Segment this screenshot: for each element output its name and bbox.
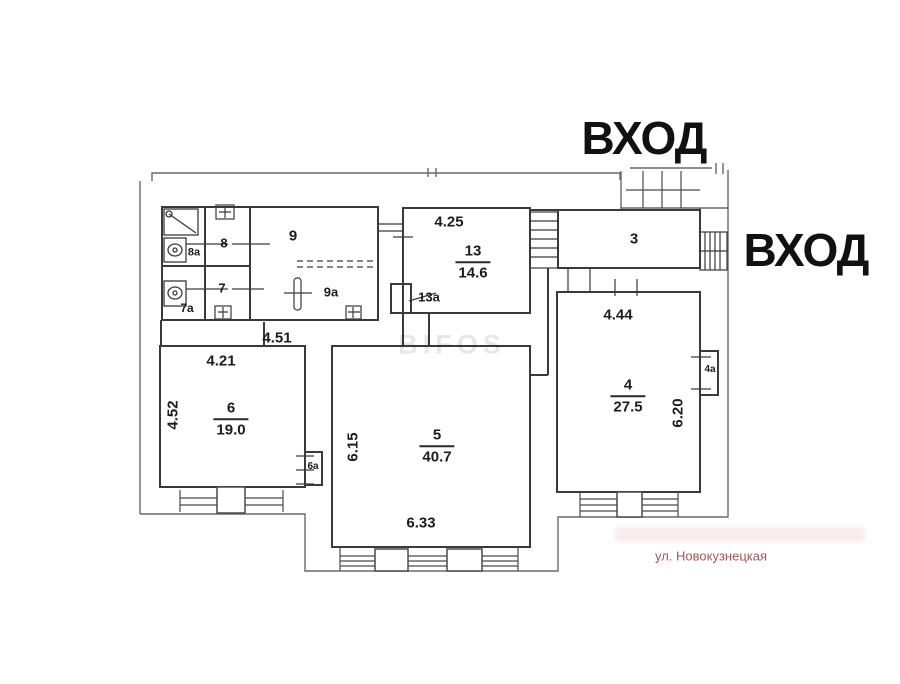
room-5-number: 5 (431, 427, 443, 445)
shower-icon (164, 209, 198, 235)
dim-top-room6: 4.21 (206, 354, 235, 369)
dim-top-room4: 4.44 (603, 308, 632, 323)
room-4-area-label: 4 27.5 (610, 377, 645, 415)
room-13a-label: 13a (418, 291, 440, 304)
room-13-area-label: 13 14.6 (455, 243, 490, 281)
room-4-area: 27.5 (610, 395, 645, 415)
window-band-room5 (340, 547, 518, 571)
room-13-area: 14.6 (455, 261, 490, 281)
toilet-icon (164, 238, 186, 262)
vent-shaft-icon (215, 205, 361, 319)
watermark-text: BIFOS (398, 330, 506, 361)
dim-bottom-room5: 6.33 (406, 516, 435, 531)
room-4-number: 4 (622, 377, 634, 395)
room-6-area-label: 6 19.0 (213, 400, 248, 438)
room-7a-label: 7a (180, 302, 193, 314)
entrance-porch-steps (621, 171, 728, 232)
room-8a-label: 8a (188, 248, 200, 259)
window-band-room4 (580, 492, 678, 517)
entrance-label-top: ВХОД (582, 115, 707, 161)
faded-watermark-smudge (615, 527, 865, 542)
room-8-label: 8 (220, 237, 227, 250)
dim-right-room4: 6.20 (671, 398, 686, 427)
dim-top-room13: 4.25 (434, 215, 463, 230)
room-6-area: 19.0 (213, 418, 248, 438)
dim-left-room5: 6.15 (346, 432, 361, 461)
dim-left-room6: 4.52 (166, 400, 181, 429)
room-7-label: 7 (218, 282, 225, 295)
room-5-area-label: 5 40.7 (419, 427, 454, 465)
room-9-label: 9 (289, 229, 297, 244)
room-3-label: 3 (630, 232, 638, 247)
entrance-label-right: ВХОД (744, 227, 869, 273)
floorplan: ВХОД ВХОД 4.25 4.44 4.21 4.51 4.52 6.15 … (0, 0, 900, 684)
room-9a-label: 9a (324, 286, 338, 299)
street-name-label: ул. Новокузнецкая (655, 549, 767, 564)
dim-hallway: 4.51 (262, 331, 291, 346)
window-band-room6 (180, 487, 283, 513)
room-6-number: 6 (225, 400, 237, 418)
room-13-number: 13 (463, 243, 484, 261)
room-6a-label: 6a (307, 462, 318, 472)
room-4a-label: 4a (704, 365, 715, 375)
door-leaf-icon (294, 278, 301, 310)
staircase-icon (530, 212, 727, 270)
room-5-area: 40.7 (419, 445, 454, 465)
